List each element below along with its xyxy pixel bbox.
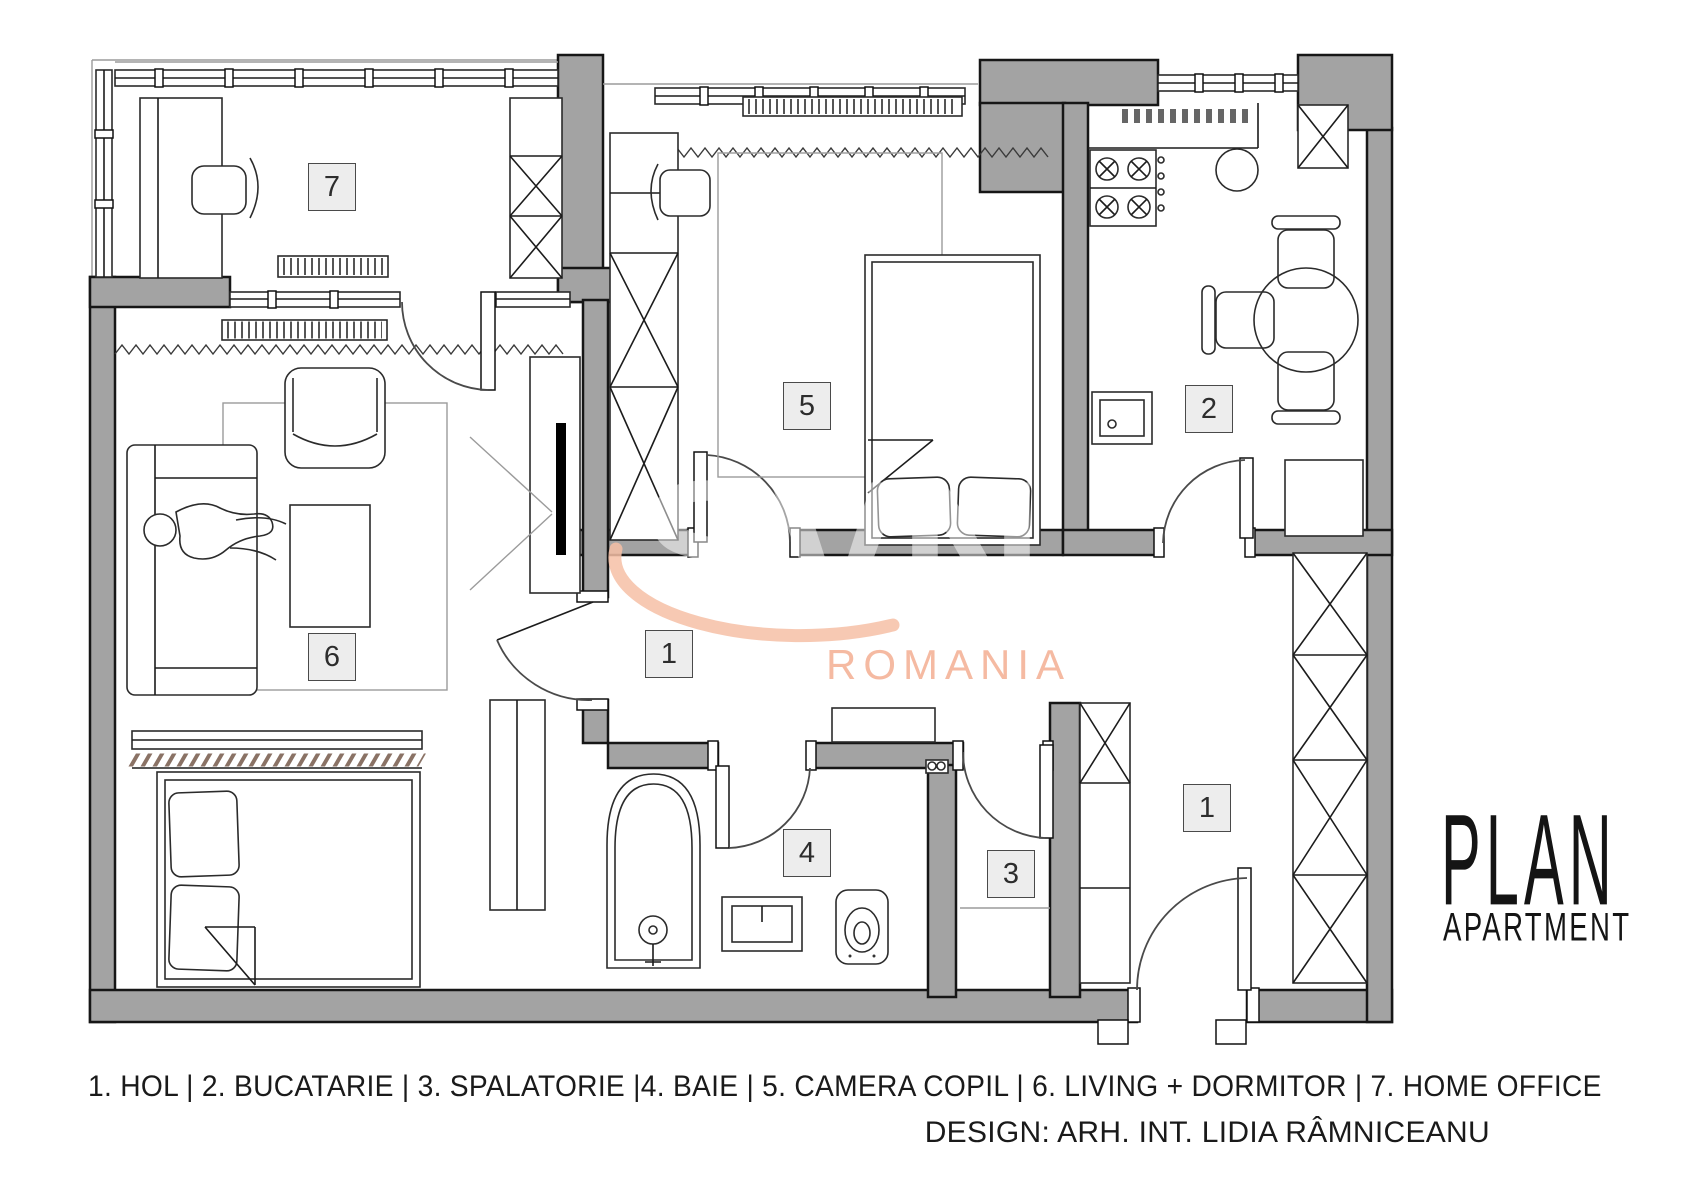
wall-pillar-top <box>980 60 1158 105</box>
bed-double <box>157 772 420 987</box>
desk-chair <box>192 158 258 218</box>
wall-tv <box>583 300 608 597</box>
kitchen-cabinet <box>1285 460 1363 536</box>
wall-bath-laundry <box>928 765 956 997</box>
room-label-2: 2 <box>1185 385 1233 433</box>
room-label-1-upper-hall: 1 <box>645 630 693 678</box>
fridge <box>1298 105 1348 168</box>
door-kitchen <box>1154 458 1255 557</box>
door-living <box>497 591 608 710</box>
wall-laundry-right <box>1050 703 1080 997</box>
window-living-top <box>230 291 570 308</box>
room-label-3: 3 <box>987 850 1035 898</box>
hall-console <box>832 708 935 742</box>
wardrobe-office <box>510 98 562 278</box>
wardrobe-bedroom-strip <box>490 700 545 910</box>
entrance-threshold-right <box>1216 1020 1246 1044</box>
room-label-1-lower-hall: 1 <box>1183 784 1231 832</box>
bathroom-sink <box>722 897 802 951</box>
coffee-table <box>290 505 370 627</box>
sofa <box>127 445 257 695</box>
wall-bath-top-a <box>608 743 718 768</box>
window-kitchen-top <box>1158 74 1298 92</box>
wall-right <box>1367 128 1392 1022</box>
room-label-6: 6 <box>308 633 356 681</box>
legend: 1. HOL | 2. BUCATARIE | 3. SPALATORIE |4… <box>88 1070 1602 1104</box>
tv-unit <box>470 357 580 593</box>
room-label-7: 7 <box>308 163 356 211</box>
wall-left <box>90 277 115 1022</box>
closet-hall-left <box>1080 703 1130 983</box>
watermark-text: ROMANIA <box>826 641 1071 689</box>
wall-kitchen-childroom <box>1063 103 1088 533</box>
armchair <box>285 368 385 468</box>
dining-chair <box>1202 286 1274 354</box>
sink-base-cabinet <box>1092 392 1152 444</box>
wardrobe-hall-right <box>1293 553 1367 983</box>
room-label-5: 5 <box>783 382 831 430</box>
toilet <box>836 890 888 964</box>
floor-plan-page: SVN 7 5 2 6 1 4 3 1 ROMANIA PLAN APARTME… <box>0 0 1696 1200</box>
bathtub <box>607 774 700 968</box>
room-label-4: 4 <box>783 829 831 877</box>
window-office-left <box>95 70 113 277</box>
radiator-childroom <box>743 97 962 116</box>
kitchen-sink <box>1216 149 1258 191</box>
door-laundry <box>953 741 1053 838</box>
wall-office-right <box>558 55 603 302</box>
radiator-office <box>278 256 388 277</box>
pillow <box>169 885 240 971</box>
room-home-office <box>140 98 258 278</box>
floor-plan-drawing: SVN <box>0 0 1696 1200</box>
tv-screen <box>556 423 566 555</box>
room-kitchen <box>1088 103 1363 536</box>
room-bathroom <box>607 774 888 968</box>
window-office-top <box>115 62 558 87</box>
wall-pillar-side <box>980 103 1065 192</box>
wall-living-top <box>90 277 230 307</box>
pillow <box>169 791 240 877</box>
bed-partition <box>132 731 422 768</box>
zigzag-living <box>115 345 563 354</box>
radiator-living <box>222 320 387 340</box>
wall-bottom-left <box>90 990 1137 1022</box>
entrance-threshold-left <box>1098 1020 1128 1044</box>
dining-chair <box>1272 352 1340 424</box>
door-living-terrace <box>402 292 495 390</box>
design-credit: DESIGN: ARH. INT. LIDIA RÂMNICEANU <box>925 1116 1490 1150</box>
stove <box>1090 150 1164 226</box>
wall-kitchen-bottom-a <box>1063 530 1163 555</box>
page-subtitle: APARTMENT <box>1443 906 1631 951</box>
dining-chair <box>1272 216 1340 288</box>
